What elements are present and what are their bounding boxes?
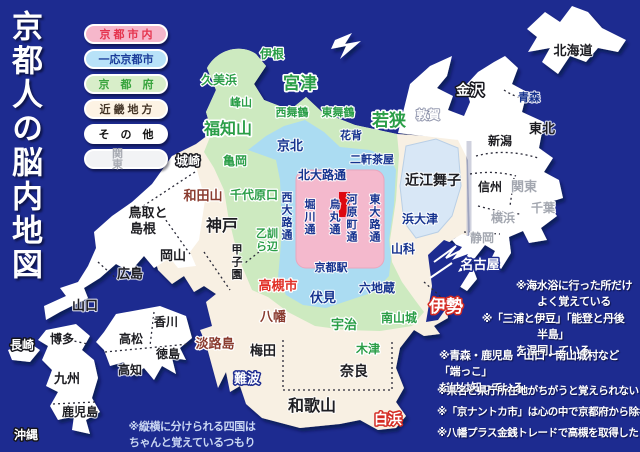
note-kyonantoka: ※「京ナントカ市」は心の中で京都府から除名 (437, 405, 640, 420)
map-label-karasuma-dori: 烏丸通 (329, 197, 342, 236)
map-label-tottori-1: 鳥取と (128, 205, 167, 221)
map-label-nagoya: 名古屋 (460, 257, 499, 273)
map-label-yamaguchi: 山口 (72, 298, 98, 314)
map-label-kumihama: 久美浜 (201, 72, 237, 87)
map-label-nagasaki: 長崎 (10, 337, 34, 352)
map-label-hiroshima: 広島 (117, 266, 143, 282)
map-label-kochi: 高知 (118, 362, 142, 377)
note-capitals: ※県名と県庁所在地がちがうと覚えられない (437, 384, 639, 399)
map-label-kyoto-station: 京都駅 (315, 260, 348, 274)
map-label-kagawa: 香川 (153, 314, 178, 329)
map-label-yokohama: 横浜 (491, 210, 515, 225)
map-label-omi-maiko: 近江舞子 (405, 172, 461, 189)
map-label-ise: 伊勢 (428, 296, 463, 317)
map-label-hokkaido: 北海道 (553, 43, 592, 59)
map-label-hakata: 博多 (50, 331, 74, 346)
map-label-kawaramachi-dori: 河原町通 (347, 192, 358, 244)
map-label-kameoka: 亀岡 (223, 153, 247, 168)
map-label-minami-yamashiro: 南山城 (381, 310, 417, 325)
map-label-uji: 宇治 (331, 317, 357, 333)
map-label-fukuchiyama: 福知山 (203, 119, 252, 138)
map-label-takamatsu: 高松 (119, 331, 143, 346)
note-swimming: ※海水浴に行った所だけ よく覚えている (514, 278, 634, 310)
map-label-horikawa-dori: 堀川通 (304, 197, 316, 236)
map-label-fushimi: 伏見 (310, 290, 336, 306)
note-trade: ※八幡プラス金銭トレードで高槻を取得した (437, 426, 639, 441)
map-label-okayama: 岡山 (160, 248, 186, 264)
map-label-rokujizo: 六地蔵 (359, 280, 395, 295)
map-label-takatsuki-shi: 高槻市 (258, 278, 297, 294)
map-label-kitaoji-dori: 北大路通 (298, 167, 346, 182)
map-label-chiba: 千葉 (531, 200, 556, 215)
note-shikoku: ※縦横に分けられる四国は ちゃんと覚えているつもり (126, 419, 258, 451)
map-label-hanase: 花背 (340, 128, 362, 142)
map-label-namba: 難波 (234, 371, 261, 387)
map-label-yawata: 八幡 (259, 309, 286, 325)
map-label-tsuruga: 敦賀 (416, 107, 440, 122)
map-label-tottori-2: 島根 (130, 221, 157, 237)
map-label-nishioji-dori: 西大路通 (282, 191, 294, 242)
map-label-umeda: 梅田 (250, 343, 276, 359)
map-label-kobe: 神戸 (206, 216, 238, 235)
map-label-chiyoharaguchi: 千代原口 (230, 187, 278, 202)
legend-item-kyoto-city-maybe: 一応京都市 (84, 49, 168, 69)
map-label-miyazu: 宮津 (283, 73, 317, 94)
map-label-otokuni-1: 乙訓 (256, 226, 278, 240)
legend-item-kyoto-pref: 京都府 (84, 74, 168, 94)
map-label-shinshu: 信州 (478, 179, 502, 194)
map-label-higashi-maizuru: 東舞鶴 (322, 105, 355, 119)
map-label-higashioji-dori: 東大路通 (370, 192, 382, 244)
map-label-yamashina: 山科 (391, 241, 415, 256)
map-label-wadayama: 和田山 (183, 188, 222, 204)
map-label-wakayama: 和歌山 (288, 396, 336, 415)
legend-item-kinki: 近畿地方 (84, 99, 168, 119)
map-label-kanto: 関東 (511, 179, 537, 195)
map-label-awajishima: 淡路島 (195, 336, 234, 352)
kyoto-brain-map: 伊根宮津久美浜峰山福知山亀岡西舞鶴東舞鶴若狭敦賀花背京北二軒茶屋北大路通千代原口… (0, 0, 640, 452)
map-legend: 京都市内 一応京都市 京都府 近畿地方 その他 関東 (84, 24, 168, 174)
map-label-otokuni-2: ら辺 (256, 240, 278, 253)
map-label-nara: 奈良 (339, 363, 368, 380)
page-title: 京都人の脳内地図 (8, 10, 39, 310)
legend-item-kyoto-city: 京都市内 (84, 24, 168, 44)
map-label-tokushima: 徳島 (155, 346, 180, 361)
map-label-okinawa: 沖縄 (14, 427, 38, 442)
map-label-aomori: 青森 (518, 90, 541, 104)
map-label-ine: 伊根 (259, 46, 284, 61)
map-label-koshien: 甲子園 (232, 243, 243, 281)
map-label-kizu: 木津 (355, 341, 380, 356)
map-label-kyushu: 九州 (53, 372, 80, 387)
map-label-kinosaki: 城崎 (176, 153, 200, 168)
legend-item-other: その他 (84, 124, 168, 144)
map-label-keihoku: 京北 (277, 138, 303, 154)
map-label-nikenchaya: 二軒茶屋 (350, 152, 394, 166)
map-label-niigata: 新潟 (488, 133, 512, 148)
map-label-kagoshima: 鹿児島 (62, 404, 98, 419)
map-label-tohoku: 東北 (529, 121, 555, 137)
map-label-hamaotsu: 浜大津 (402, 211, 438, 226)
map-label-shizuoka: 静岡 (470, 230, 494, 245)
map-label-kanazawa: 金沢 (455, 82, 485, 99)
map-label-wakasa: 若狭 (371, 110, 406, 131)
map-label-shirahama: 白浜 (374, 411, 402, 428)
map-label-mineyama: 峰山 (230, 95, 252, 109)
map-label-nishi-maizuru: 西舞鶴 (276, 105, 309, 119)
legend-item-kanto: 関東 (84, 149, 168, 169)
